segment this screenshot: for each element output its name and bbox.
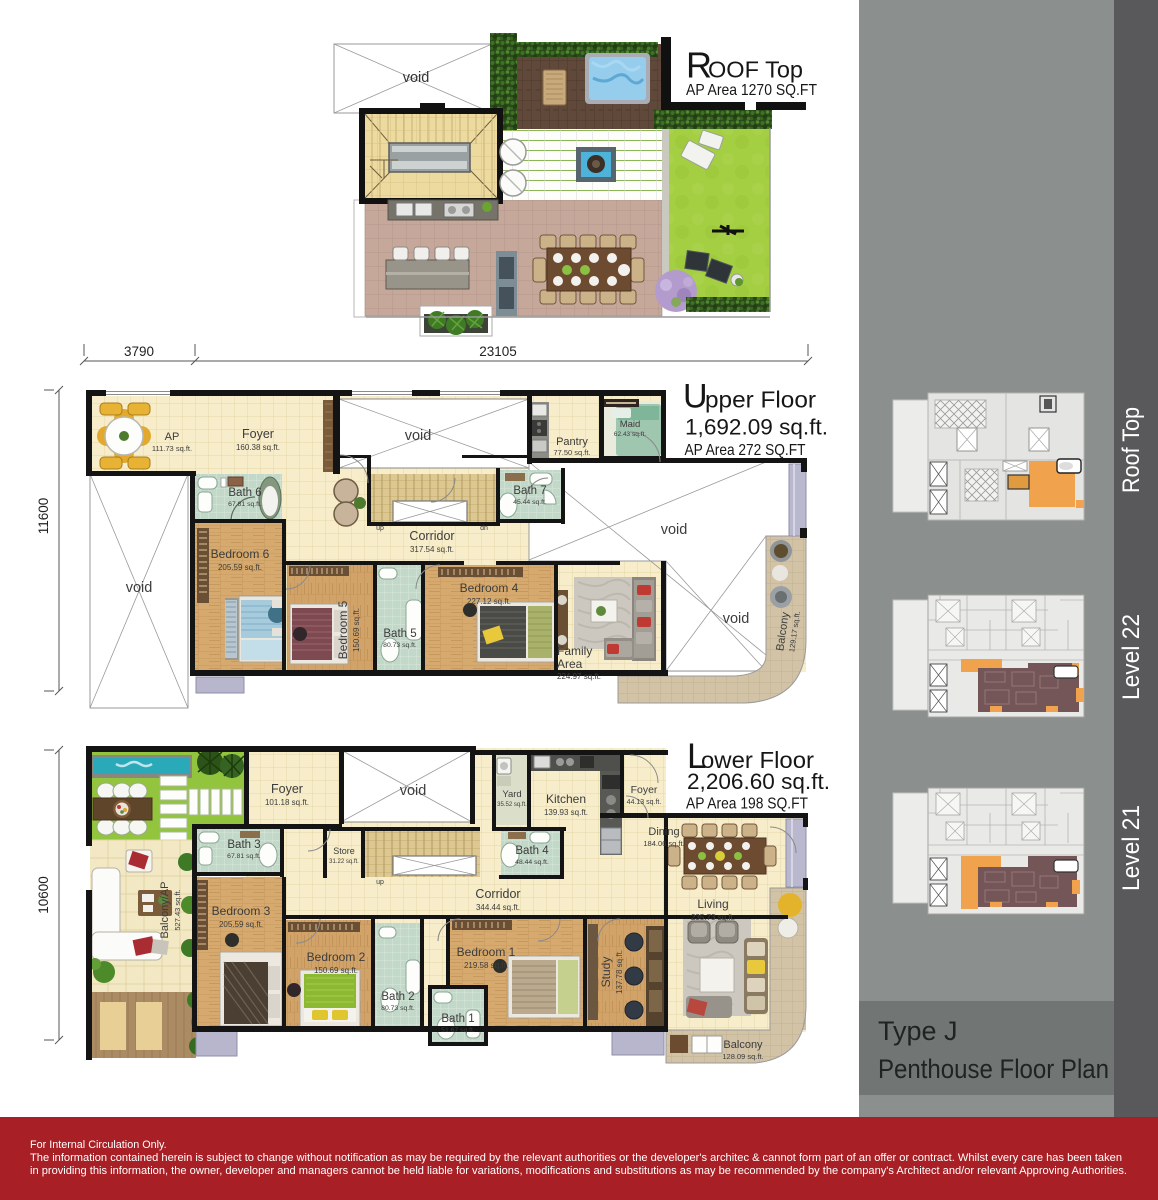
svg-text:Bedroom 3: Bedroom 3: [212, 904, 271, 918]
svg-text:Foyer: Foyer: [271, 782, 303, 796]
svg-text:48.44 sq.ft.: 48.44 sq.ft.: [515, 859, 549, 866]
svg-text:up: up: [376, 525, 384, 532]
svg-text:11600: 11600: [36, 498, 51, 535]
svg-text:Corridor: Corridor: [475, 887, 520, 901]
svg-text:3790: 3790: [124, 344, 154, 359]
svg-text:Level 21: Level 21: [1118, 805, 1145, 891]
svg-text:AP Area 198 SQ.FT: AP Area 198 SQ.FT: [686, 796, 808, 813]
svg-text:Type J: Type J: [878, 1016, 958, 1046]
svg-text:31.22 sq.ft.: 31.22 sq.ft.: [329, 859, 359, 865]
svg-text:For Internal Circulation Only.: For Internal Circulation Only.: [30, 1139, 167, 1151]
svg-text:62.43 sq.ft.: 62.43 sq.ft.: [614, 431, 646, 438]
svg-text:235.73 sq.ft.: 235.73 sq.ft.: [691, 913, 735, 922]
svg-text:Foyer: Foyer: [631, 784, 658, 796]
svg-text:in providing this information,: in providing this information, the owner…: [30, 1165, 1127, 1177]
svg-text:Bath 5: Bath 5: [383, 628, 416, 640]
svg-text:227.12 sq.ft.: 227.12 sq.ft.: [467, 597, 511, 606]
svg-text:Roof Top: Roof Top: [1118, 407, 1145, 493]
svg-text:Foyer: Foyer: [242, 427, 274, 441]
svg-text:Yard: Yard: [502, 789, 521, 800]
svg-text:Bedroom 5: Bedroom 5: [336, 600, 350, 659]
svg-text:Store: Store: [333, 846, 355, 856]
svg-text:AP Area 1270 SQ.FT: AP Area 1270 SQ.FT: [686, 82, 817, 99]
svg-text:void: void: [661, 522, 688, 538]
svg-text:101.18 sq.ft.: 101.18 sq.ft.: [265, 798, 309, 807]
svg-text:Balcony: Balcony: [723, 1039, 763, 1051]
svg-text:pper Floor: pper Floor: [705, 387, 816, 413]
svg-text:44.13 sq.ft.: 44.13 sq.ft.: [627, 799, 662, 806]
svg-text:67.81 sq.ft.: 67.81 sq.ft.: [228, 501, 262, 508]
svg-text:Bath 6: Bath 6: [228, 487, 261, 499]
svg-text:527.43 sq.ft.: 527.43 sq.ft.: [173, 889, 182, 930]
svg-text:80.73 sq.ft.: 80.73 sq.ft.: [381, 1005, 415, 1012]
svg-text:void: void: [403, 70, 430, 86]
svg-text:184.06 sq.ft.: 184.06 sq.ft.: [643, 839, 684, 848]
svg-text:77.50 sq.ft.: 77.50 sq.ft.: [553, 448, 590, 457]
svg-text:Balcony/AP: Balcony/AP: [159, 882, 171, 939]
svg-text:Penthouse Floor Plan: Penthouse Floor Plan: [878, 1054, 1109, 1084]
svg-text:344.44 sq.ft.: 344.44 sq.ft.: [476, 903, 520, 912]
svg-text:AP: AP: [165, 431, 180, 443]
svg-text:80.73 sq.ft.: 80.73 sq.ft.: [383, 642, 417, 649]
svg-text:Living: Living: [697, 897, 728, 911]
svg-text:OOF Top: OOF Top: [708, 57, 803, 83]
svg-text:Bath 1: Bath 1: [441, 1013, 474, 1025]
svg-text:139.93 sq.ft.: 139.93 sq.ft.: [544, 808, 588, 817]
svg-text:45.44 sq.ft.: 45.44 sq.ft.: [513, 499, 547, 506]
svg-text:up: up: [376, 879, 384, 886]
svg-text:Kitchen: Kitchen: [546, 792, 586, 806]
svg-text:150.69 sq.ft.: 150.69 sq.ft.: [352, 608, 361, 652]
svg-text:Study: Study: [599, 957, 613, 988]
svg-text:137.78 sq.ft.: 137.78 sq.ft.: [615, 950, 624, 994]
svg-text:Bath 7: Bath 7: [513, 485, 546, 497]
svg-text:317.54 sq.ft.: 317.54 sq.ft.: [410, 545, 454, 554]
svg-text:U: U: [683, 378, 708, 416]
svg-text:Dining: Dining: [648, 826, 679, 838]
svg-text:Area: Area: [557, 657, 583, 671]
svg-text:Maid: Maid: [620, 419, 641, 430]
svg-text:Corridor: Corridor: [409, 529, 454, 543]
svg-text:Bath 3: Bath 3: [227, 839, 260, 851]
svg-text:205.59 sq.ft.: 205.59 sq.ft.: [219, 920, 263, 929]
svg-text:205.59 sq.ft.: 205.59 sq.ft.: [218, 563, 262, 572]
svg-text:224.97 sq.ft.: 224.97 sq.ft.: [557, 672, 601, 681]
svg-text:void: void: [723, 611, 750, 627]
svg-text:void: void: [400, 783, 427, 799]
svg-text:150.69 sq.ft.: 150.69 sq.ft.: [314, 966, 358, 975]
svg-text:35.52 sq.ft.: 35.52 sq.ft.: [497, 802, 527, 808]
svg-text:1,692.09 sq.ft.: 1,692.09 sq.ft.: [685, 415, 828, 440]
svg-text:Pantry: Pantry: [556, 436, 588, 448]
svg-text:2,206.60 sq.ft.: 2,206.60 sq.ft.: [687, 769, 830, 794]
svg-text:219.58 sq.ft.: 219.58 sq.ft.: [464, 961, 508, 970]
svg-text:void: void: [405, 428, 432, 444]
svg-text:Bedroom 4: Bedroom 4: [460, 581, 519, 595]
svg-text:Bedroom 2: Bedroom 2: [307, 950, 366, 964]
svg-text:10600: 10600: [36, 876, 51, 914]
svg-text:160.38 sq.ft.: 160.38 sq.ft.: [236, 443, 280, 452]
svg-text:Bedroom 1: Bedroom 1: [457, 945, 516, 959]
svg-text:Level 22: Level 22: [1118, 614, 1145, 700]
svg-text:23105: 23105: [479, 344, 517, 359]
svg-text:Bedroom 6: Bedroom 6: [211, 547, 270, 561]
svg-text:67.81 sq.ft.: 67.81 sq.ft.: [227, 853, 261, 860]
svg-text:AP Area 272 SQ.FT: AP Area 272 SQ.FT: [685, 442, 806, 459]
svg-text:51.67 sq.ft.: 51.67 sq.ft.: [441, 1027, 475, 1034]
svg-text:Bath 2: Bath 2: [381, 991, 414, 1003]
svg-text:111.73 sq.ft.: 111.73 sq.ft.: [152, 444, 192, 453]
svg-text:dn: dn: [480, 525, 488, 532]
svg-text:void: void: [126, 580, 153, 596]
svg-text:Bath 4: Bath 4: [515, 845, 549, 857]
svg-text:128.09 sq.ft.: 128.09 sq.ft.: [722, 1052, 763, 1061]
svg-text:Family: Family: [557, 644, 592, 658]
svg-text:The information contained here: The information contained herein is subj…: [30, 1152, 1122, 1164]
